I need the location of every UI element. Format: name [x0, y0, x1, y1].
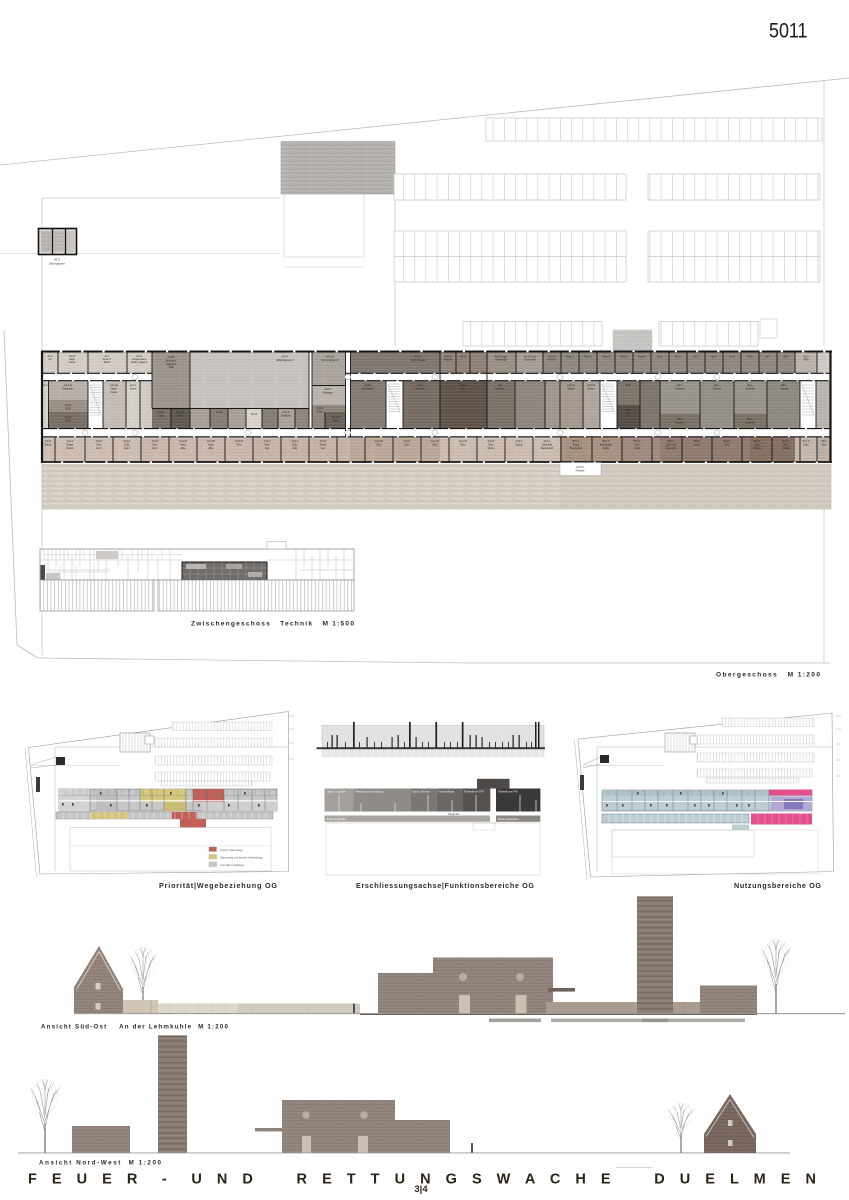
- svg-text:Büro: Büro: [755, 443, 761, 446]
- svg-text:A4.5.14: A4.5.14: [567, 384, 576, 387]
- svg-text:A4.1.14: A4.1.14: [459, 440, 468, 443]
- svg-text:A4.a.2: A4.a.2: [124, 440, 131, 443]
- svg-text:WCD: WCD: [65, 408, 71, 410]
- svg-text:A4.3.9: A4.3.9: [65, 416, 72, 419]
- svg-text:Home: Home: [208, 444, 215, 446]
- svg-text:A4.4.11: A4.4.11: [64, 384, 72, 387]
- svg-text:Nutzungsbereiche OG: Nutzungsbereiche OG: [734, 881, 821, 890]
- svg-text:A4.3.5: A4.3.5: [488, 440, 495, 443]
- svg-text:B3.4: B3.4: [712, 357, 717, 359]
- svg-text:A4.1.1: A4.1.1: [544, 440, 551, 443]
- svg-text:Umkleide: Umkleide: [415, 388, 425, 390]
- svg-text:B3.2: B3.2: [676, 357, 681, 359]
- svg-text:Zwischengeschoss Technik M: Zwischengeschoss Technik M 1:500: [191, 621, 354, 628]
- svg-text:Post: Post: [725, 443, 730, 446]
- svg-text:Sprechzent: Sprechzent: [524, 359, 536, 362]
- svg-text:A4.3.10: A4.3.10: [235, 440, 244, 443]
- svg-text:A4.4: A4.4: [43, 384, 48, 387]
- svg-text:Amt 1: Amt 1: [152, 447, 159, 450]
- svg-text:B3.5.1: B3.5.1: [694, 441, 701, 443]
- svg-text:B3.2.3: B3.2.3: [724, 441, 731, 443]
- svg-text:A4.3.18: A4.3.18: [207, 440, 216, 443]
- svg-text:GeTu: GeTu: [236, 444, 242, 446]
- svg-text:Technik: Technik: [780, 388, 789, 390]
- svg-text:B3.8: B3.8: [784, 357, 789, 359]
- svg-text:Ruhe 1: Ruhe 1: [548, 360, 556, 362]
- svg-text:5011: 5011: [769, 20, 808, 43]
- svg-text:Ansicht Süd-Ost An der Lehm: Ansicht Süd-Ost An der Lehmkuhle M 1:200: [41, 1024, 229, 1031]
- svg-text:Leit: Leit: [321, 447, 325, 450]
- svg-text:Freistat: Freistat: [576, 469, 585, 473]
- svg-text:Gruppenraum: Gruppenraum: [132, 358, 146, 361]
- svg-text:A4.8.6: A4.8.6: [158, 411, 165, 414]
- svg-text:Funk IT: Funk IT: [103, 359, 111, 361]
- svg-text:WC: WC: [626, 413, 630, 415]
- svg-text:Passe: Passe: [573, 444, 580, 446]
- svg-text:Duschen: Duschen: [675, 422, 685, 424]
- svg-text:Lager: Lager: [158, 414, 164, 417]
- svg-text:B3.6: B3.6: [748, 357, 753, 359]
- svg-text:Gerät: Gerät: [69, 361, 75, 364]
- svg-text:A4.1.9: A4.1.9: [264, 440, 271, 443]
- svg-text:Spind: Spind: [634, 448, 641, 450]
- svg-text:Schulungsraum 1: Schulungsraum 1: [321, 359, 340, 362]
- svg-text:Sport | Fitness: Sport | Fitness: [412, 790, 431, 794]
- svg-text:A4.13: A4.13: [216, 411, 223, 414]
- svg-text:A4.1.10: A4.1.10: [176, 411, 185, 414]
- svg-text:Ruhe 6: Ruhe 6: [638, 357, 646, 359]
- svg-text:A4.11: A4.11: [136, 355, 143, 358]
- svg-text:A4.8.1: A4.8.1: [152, 440, 159, 443]
- svg-text:Büro: Büro: [784, 443, 790, 446]
- svg-text:A4.1.5: A4.1.5: [283, 411, 290, 414]
- svg-text:WRa: WRa: [803, 360, 809, 362]
- svg-text:Umkleide: Umkleide: [675, 388, 685, 390]
- svg-text:A4.1.12: A4.1.12: [332, 416, 341, 419]
- svg-text:Erschliessungsachse|Funktionsb: Erschliessungsachse|Funktionsbereiche OG: [356, 881, 534, 890]
- svg-text:A4.8.8: A4.8.8: [365, 384, 372, 387]
- svg-text:Ruhe 2: Ruhe 2: [566, 357, 574, 359]
- svg-text:B3.1.1: B3.1.1: [573, 441, 580, 443]
- svg-text:A4/A.3: A4/A.3: [96, 440, 104, 443]
- svg-text:Sprech: Sprech: [515, 443, 523, 446]
- svg-text:Lager: Lager: [69, 358, 75, 361]
- svg-text:A4.1.4: A4.1.4: [516, 440, 523, 443]
- svg-text:office: office: [208, 448, 214, 450]
- svg-text:B2.1: B2.1: [748, 385, 753, 387]
- svg-text:Werks: Werks: [104, 361, 111, 364]
- svg-text:A4.9: A4.9: [498, 384, 503, 387]
- svg-text:Besprech-: Besprech-: [166, 359, 177, 362]
- svg-text:Garderobe: Garderobe: [63, 387, 75, 390]
- svg-text:Kleiderk: Kleiderk: [444, 359, 453, 362]
- svg-text:A4.3.12: A4.3.12: [179, 440, 188, 443]
- svg-text:Tech: Tech: [822, 444, 828, 446]
- svg-text:A4.1.13: A4.1.13: [431, 440, 440, 443]
- svg-text:Rating: Rating: [45, 443, 52, 446]
- svg-text:Lehrm: Lehrm: [317, 410, 324, 413]
- svg-text:A4.13: A4.13: [251, 413, 258, 416]
- svg-text:Büro: Büro: [265, 443, 271, 446]
- svg-text:Technik: Technik: [713, 388, 722, 390]
- svg-text:Bürger: Bürger: [67, 443, 74, 446]
- svg-text:Telefon: Telefon: [66, 448, 74, 450]
- svg-text:B2.1: B2.1: [678, 385, 683, 387]
- svg-text:Schulungsraum 2: Schulungsraum 2: [276, 359, 295, 362]
- svg-text:A4.8.3: A4.8.3: [460, 384, 467, 387]
- svg-text:B3.3: B3.3: [694, 357, 699, 359]
- svg-text:A4.1.10: A4.1.10: [326, 356, 335, 359]
- svg-text:B2.1: B2.1: [782, 385, 787, 387]
- svg-text:Sanität: Sanität: [782, 447, 790, 450]
- svg-text:Büro: Büro: [377, 443, 383, 446]
- svg-text:WCH: WCH: [177, 415, 183, 417]
- svg-text:Ordn.: Ordn.: [152, 443, 158, 446]
- svg-text:Büro: Büro: [405, 443, 411, 446]
- svg-text:Betten: Betten: [588, 387, 595, 390]
- svg-text:A4.5.2: A4.5.2: [576, 465, 584, 469]
- svg-text:Wache: Wache: [487, 448, 495, 450]
- svg-text:Wu Wasch: Wu Wasch: [363, 388, 375, 390]
- svg-text:Übungsturm: Übungsturm: [49, 262, 66, 266]
- svg-text:Fahrzeuge: Fahrzeuge: [496, 359, 508, 362]
- svg-text:Priorität|Wegebeziehung OG: Priorität|Wegebeziehung OG: [159, 881, 277, 890]
- svg-text:Kach: Kach: [634, 444, 640, 446]
- svg-text:A4.1.8: A4.1.8: [292, 440, 299, 443]
- svg-text:OE.1: OE.1: [821, 441, 827, 443]
- svg-text:B3.1.2: B3.1.2: [783, 441, 790, 443]
- svg-text:Fahrzeughalle: Fahrzeughalle: [327, 817, 346, 821]
- svg-text:A4.1.8: A4.1.8: [317, 407, 324, 410]
- svg-text:Home: Home: [180, 444, 187, 446]
- svg-text:A4.3.8: A4.3.8: [65, 404, 72, 407]
- svg-text:Büro: Büro: [433, 443, 439, 446]
- svg-text:A4.4.10: A4.4.10: [110, 384, 119, 387]
- svg-text:B2.3: B2.3: [678, 419, 683, 421]
- svg-text:Amt 3: Amt 3: [96, 447, 103, 450]
- svg-text:Lehrm: Lehrm: [694, 443, 701, 446]
- svg-text:Lager | Logistik: Lager | Logistik: [327, 790, 347, 794]
- svg-text:Ruhe 5: Ruhe 5: [620, 357, 628, 359]
- svg-text:Unterricht: Unterricht: [666, 447, 676, 450]
- svg-text:WCH: WCH: [65, 420, 71, 422]
- svg-text:B3.1.3: B3.1.3: [803, 441, 810, 443]
- svg-text:Akten: Akten: [333, 419, 340, 422]
- svg-text:Dienst: Dienst: [320, 443, 327, 446]
- svg-text:Lagerbüro: Lagerbüro: [166, 363, 177, 366]
- svg-text:Büro: Büro: [293, 443, 299, 446]
- svg-text:A4.16: A4.16: [69, 355, 76, 358]
- svg-text:B3.3: B3.3: [626, 385, 631, 387]
- svg-text:A4.1.2: A4.1.2: [130, 384, 137, 387]
- svg-text:Sport | Fitness: Sport | Fitness: [411, 359, 427, 362]
- svg-text:Umkleide: Umkleide: [745, 388, 755, 390]
- svg-text:Ordn.: Ordn.: [96, 443, 102, 446]
- svg-text:normaler Laufweg: normaler Laufweg: [220, 863, 244, 867]
- svg-text:A4.3.1: A4.3.1: [320, 440, 327, 443]
- svg-text:Teeküche: Teeküche: [281, 415, 292, 417]
- svg-text:B3.5.1: B3.5.1: [668, 441, 675, 443]
- svg-text:A4.5.10: A4.5.10: [587, 384, 596, 387]
- svg-text:office: office: [180, 448, 186, 450]
- svg-text:Ruheräume FW: Ruheräume FW: [464, 790, 484, 794]
- svg-text:B3.1.2: B3.1.2: [603, 441, 610, 443]
- svg-text:B3.1.4: B3.1.4: [754, 441, 761, 443]
- svg-text:A4.21 Funk: A4.21 Funk: [524, 356, 537, 359]
- svg-text:B2.4: B2.4: [748, 419, 753, 421]
- svg-text:A4.3.16: A4.3.16: [375, 440, 384, 443]
- svg-text:Küche: Küche: [603, 448, 610, 450]
- svg-text:B3.1.3: B3.1.3: [634, 441, 641, 443]
- svg-text:Büro: Büro: [804, 443, 810, 446]
- svg-text:Kinder | Jugend: Kinder | Jugend: [131, 361, 148, 364]
- svg-text:Plasma: Plasma: [753, 448, 761, 450]
- svg-text:Akten: Akten: [111, 387, 118, 390]
- svg-text:A4.2.1: A4.2.1: [404, 440, 411, 443]
- svg-text:A4.3.8: A4.3.8: [445, 356, 452, 359]
- svg-text:A4.8.2: A4.8.2: [417, 384, 424, 387]
- svg-text:Lehrm: Lehrm: [130, 387, 137, 390]
- svg-text:B3.7: B3.7: [766, 357, 771, 359]
- svg-text:B3.9: B3.9: [804, 357, 809, 359]
- svg-text:Blattlager: Blattlager: [323, 391, 333, 394]
- svg-text:A4.5.21: A4.5.21: [548, 356, 557, 359]
- svg-text:Bereitschaft: Bereitschaft: [541, 447, 553, 450]
- svg-text:Lehr- und: Lehr- und: [666, 443, 677, 446]
- svg-text:Duschen: Duschen: [745, 422, 755, 424]
- svg-text:Rettungswache: Rettungswache: [498, 817, 519, 821]
- svg-text:A4.4.4: A4.4.4: [67, 440, 74, 443]
- svg-text:kurzer Alarmweg: kurzer Alarmweg: [220, 848, 243, 852]
- svg-text:A4.8.1: A4.8.1: [415, 356, 422, 359]
- svg-text:Fahr: Fahr: [293, 447, 298, 450]
- svg-text:Aufenthalt: Aufenthalt: [542, 443, 553, 446]
- svg-text:Bereitschaft: Bereitschaft: [600, 443, 612, 446]
- svg-text:Büro: Büro: [489, 443, 495, 446]
- svg-text:B3.3: B3.3: [626, 410, 631, 412]
- svg-text:Umkleide: Umkleide: [495, 388, 505, 390]
- svg-text:Kopier: Kopier: [111, 391, 118, 394]
- svg-text:Ruhe 4: Ruhe 4: [602, 357, 610, 359]
- svg-text:Körperpflege: Körperpflege: [438, 790, 454, 794]
- svg-text:A4.1.7: A4.1.7: [325, 388, 332, 391]
- svg-text:A4.7.4: A4.7.4: [282, 356, 289, 359]
- svg-text:Bereitschaft: Bereitschaft: [570, 447, 582, 450]
- svg-text:Wäsch: Wäsch: [567, 388, 575, 390]
- svg-text:A4.10: A4.10: [460, 356, 467, 359]
- svg-text:3|4: 3|4: [414, 1184, 428, 1195]
- svg-text:A4.7: A4.7: [105, 355, 110, 358]
- svg-text:Büro: Büro: [461, 443, 467, 446]
- svg-text:A4.8.5: A4.8.5: [168, 356, 175, 359]
- svg-text:A4.11: A4.11: [45, 440, 52, 443]
- svg-text:A4.3: A4.3: [48, 355, 53, 358]
- svg-text:Wege-Ein: Wege-Ein: [448, 812, 460, 816]
- svg-text:B2.1: B2.1: [715, 385, 720, 387]
- svg-text:Ruhe 3: Ruhe 3: [584, 357, 592, 359]
- svg-text:B3.5: B3.5: [730, 357, 735, 359]
- svg-text:SAE: SAE: [169, 366, 174, 369]
- svg-text:Ordn.: Ordn.: [124, 443, 130, 446]
- svg-text:Amt 2: Amt 2: [124, 447, 131, 450]
- svg-text:A4.10 Lager: A4.10 Lager: [495, 356, 508, 359]
- svg-text:Alarmweg mit kurzer Anbindung: Alarmweg mit kurzer Anbindung: [220, 856, 263, 860]
- svg-text:Ruheräume FW: Ruheräume FW: [498, 790, 518, 794]
- svg-text:Werkstatt | Ausbildung: Werkstatt | Ausbildung: [356, 790, 384, 794]
- svg-text:B3.1: B3.1: [658, 357, 663, 359]
